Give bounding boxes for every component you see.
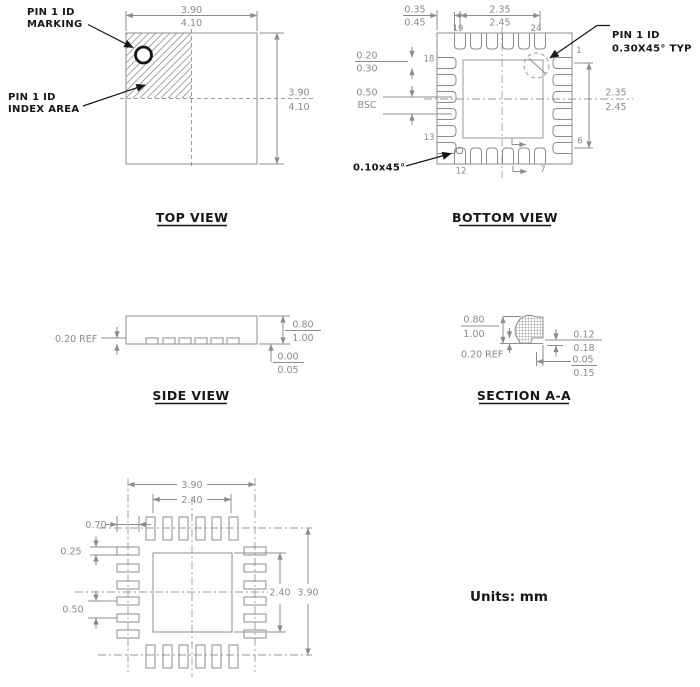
center-pad	[153, 553, 232, 632]
dim-lead-height-max: 0.18	[573, 343, 594, 354]
pad-1	[553, 58, 572, 69]
land-pad	[196, 517, 205, 540]
pad-19	[455, 33, 466, 49]
dim-pitch: 0.50	[62, 605, 83, 616]
dim-standoff-max: 0.05	[277, 365, 298, 376]
dim-height-max: 1.00	[292, 333, 313, 344]
pin1-id-label-line1: PIN 1 ID	[612, 30, 660, 41]
dim-span-right-max: 2.45	[605, 102, 626, 113]
pad-6	[553, 143, 572, 154]
dim-pitch-value: 0.50	[356, 88, 377, 99]
pad-21	[487, 33, 498, 49]
corner-chamfer-label: 0.10x45°	[353, 163, 405, 174]
pad-2	[553, 75, 572, 86]
dim-pad-width-max: 0.30	[356, 64, 377, 75]
dim-height-max: 4.10	[288, 102, 309, 113]
pin-number-1: 1	[576, 46, 581, 56]
pin1-marking-circle	[136, 47, 152, 63]
side-view-title: SIDE VIEW	[152, 388, 229, 403]
dim-lead-height-min: 0.12	[573, 330, 594, 341]
land-pad	[229, 645, 238, 668]
land-pad	[212, 517, 221, 540]
top-view-title: TOP VIEW	[156, 210, 229, 225]
pad-23	[519, 33, 530, 49]
land-pad	[163, 645, 172, 668]
pin-number-12: 12	[456, 167, 467, 177]
mold-cross-section	[515, 315, 543, 343]
dim-setback-max: 0.15	[573, 368, 594, 379]
pin1-id-label-line2: 0.30X45° TYP	[612, 44, 692, 55]
section-cut-arrow	[512, 138, 526, 145]
package-outline	[437, 33, 572, 164]
pad-7	[535, 148, 546, 164]
pad-9	[503, 148, 514, 164]
dim-standoff-min: 0.00	[277, 352, 298, 363]
pad-5	[553, 126, 572, 137]
land-pad	[179, 645, 188, 668]
dim-width-min: 3.90	[181, 5, 202, 16]
dim-span-top-min: 2.35	[489, 5, 510, 16]
terminals	[146, 338, 239, 344]
dim-height-min: 0.80	[292, 320, 313, 331]
pad-4	[553, 109, 572, 120]
extension-lines	[355, 10, 593, 148]
pin-number-19: 19	[453, 24, 464, 34]
land-pad	[146, 645, 155, 668]
dim-pad-length: 0.70	[85, 520, 106, 531]
pad-10	[487, 148, 498, 164]
pad-13	[437, 143, 456, 154]
pin1-marking-label-line1: PIN 1 ID	[27, 7, 75, 18]
dim-outer-width: 3.90	[181, 480, 202, 491]
dim-lead-thickness: 0.20 REF	[461, 350, 503, 361]
pad-24	[535, 33, 546, 49]
bottom-view-title: BOTTOM VIEW	[452, 210, 558, 225]
pin-number-7: 7	[540, 165, 545, 175]
land-pad	[179, 517, 188, 540]
pad-22	[503, 33, 514, 49]
extension-lines	[88, 494, 286, 632]
dim-height-min: 0.80	[463, 315, 484, 326]
pad-18	[437, 58, 456, 69]
land-pad	[163, 517, 172, 540]
pin1-index-label-line2: INDEX AREA	[8, 104, 79, 115]
centerlines	[75, 478, 312, 677]
pad-11	[471, 148, 482, 164]
pad-20	[471, 33, 482, 49]
dim-pad-width-min: 0.20	[356, 51, 377, 62]
dim-lead-thickness: 0.20 REF	[55, 334, 97, 345]
dim-pad-width: 0.25	[60, 547, 81, 558]
pin-number-24: 24	[531, 24, 542, 34]
pin-number-18: 18	[424, 55, 435, 65]
pad-14	[437, 126, 456, 137]
units-label: Units: mm	[470, 589, 548, 605]
dim-center-pad: 2.40	[269, 588, 290, 599]
section-aa-title: SECTION A-A	[477, 388, 571, 403]
land-pad	[146, 517, 155, 540]
pin1-marking-label-line2: MARKING	[27, 19, 83, 30]
pin1-index-label-line1: PIN 1 ID	[8, 92, 56, 103]
side-view: 0.20 REF 0.80 1.00 0.00 0.05 SIDE VIEW	[55, 316, 321, 404]
dim-corner-min: 0.35	[404, 5, 425, 16]
land-pattern: 3.90 2.40 0.70 0.25 0.50 2.40 3.90	[60, 478, 318, 677]
dim-pitch-note: BSC	[357, 100, 376, 111]
pin-number-6: 6	[577, 137, 582, 147]
dim-span-top-max: 2.45	[489, 18, 510, 29]
pad-3	[553, 92, 572, 103]
dim-outer-height: 3.90	[297, 588, 318, 599]
pad-8	[519, 148, 530, 164]
pin-number-13: 13	[424, 133, 435, 143]
dim-span-right-min: 2.35	[605, 88, 626, 99]
land-pad	[229, 517, 238, 540]
dim-setback-min: 0.05	[572, 355, 593, 366]
terminal-pads	[437, 33, 572, 164]
land-pad	[196, 645, 205, 668]
pad-17	[437, 75, 456, 86]
section-cut-arrow	[513, 166, 527, 172]
dim-height-min: 3.90	[288, 88, 309, 99]
dim-height-max: 1.00	[463, 329, 484, 340]
top-view: 3.90 4.10 3.90 4.10 PIN 1 ID MARKING PIN…	[8, 5, 316, 226]
dim-width-max: 4.10	[181, 18, 202, 29]
section-aa: 0.80 1.00 0.20 REF 0.12 0.18 0.05 0.15 S…	[461, 315, 602, 404]
centerlines	[424, 27, 633, 178]
bottom-view: 0.35 0.45 2.35 2.45 0.20 0.30 0.50 BSC 2…	[353, 5, 692, 226]
land-pad	[212, 645, 221, 668]
dim-pad-span-top: 2.40	[181, 495, 202, 506]
dim-corner-max: 0.45	[404, 18, 425, 29]
land-pads	[117, 517, 266, 668]
drawing-canvas: 3.90 4.10 3.90 4.10 PIN 1 ID MARKING PIN…	[0, 0, 700, 687]
package-drawing-sheet: 3.90 4.10 3.90 4.10 PIN 1 ID MARKING PIN…	[0, 0, 700, 687]
